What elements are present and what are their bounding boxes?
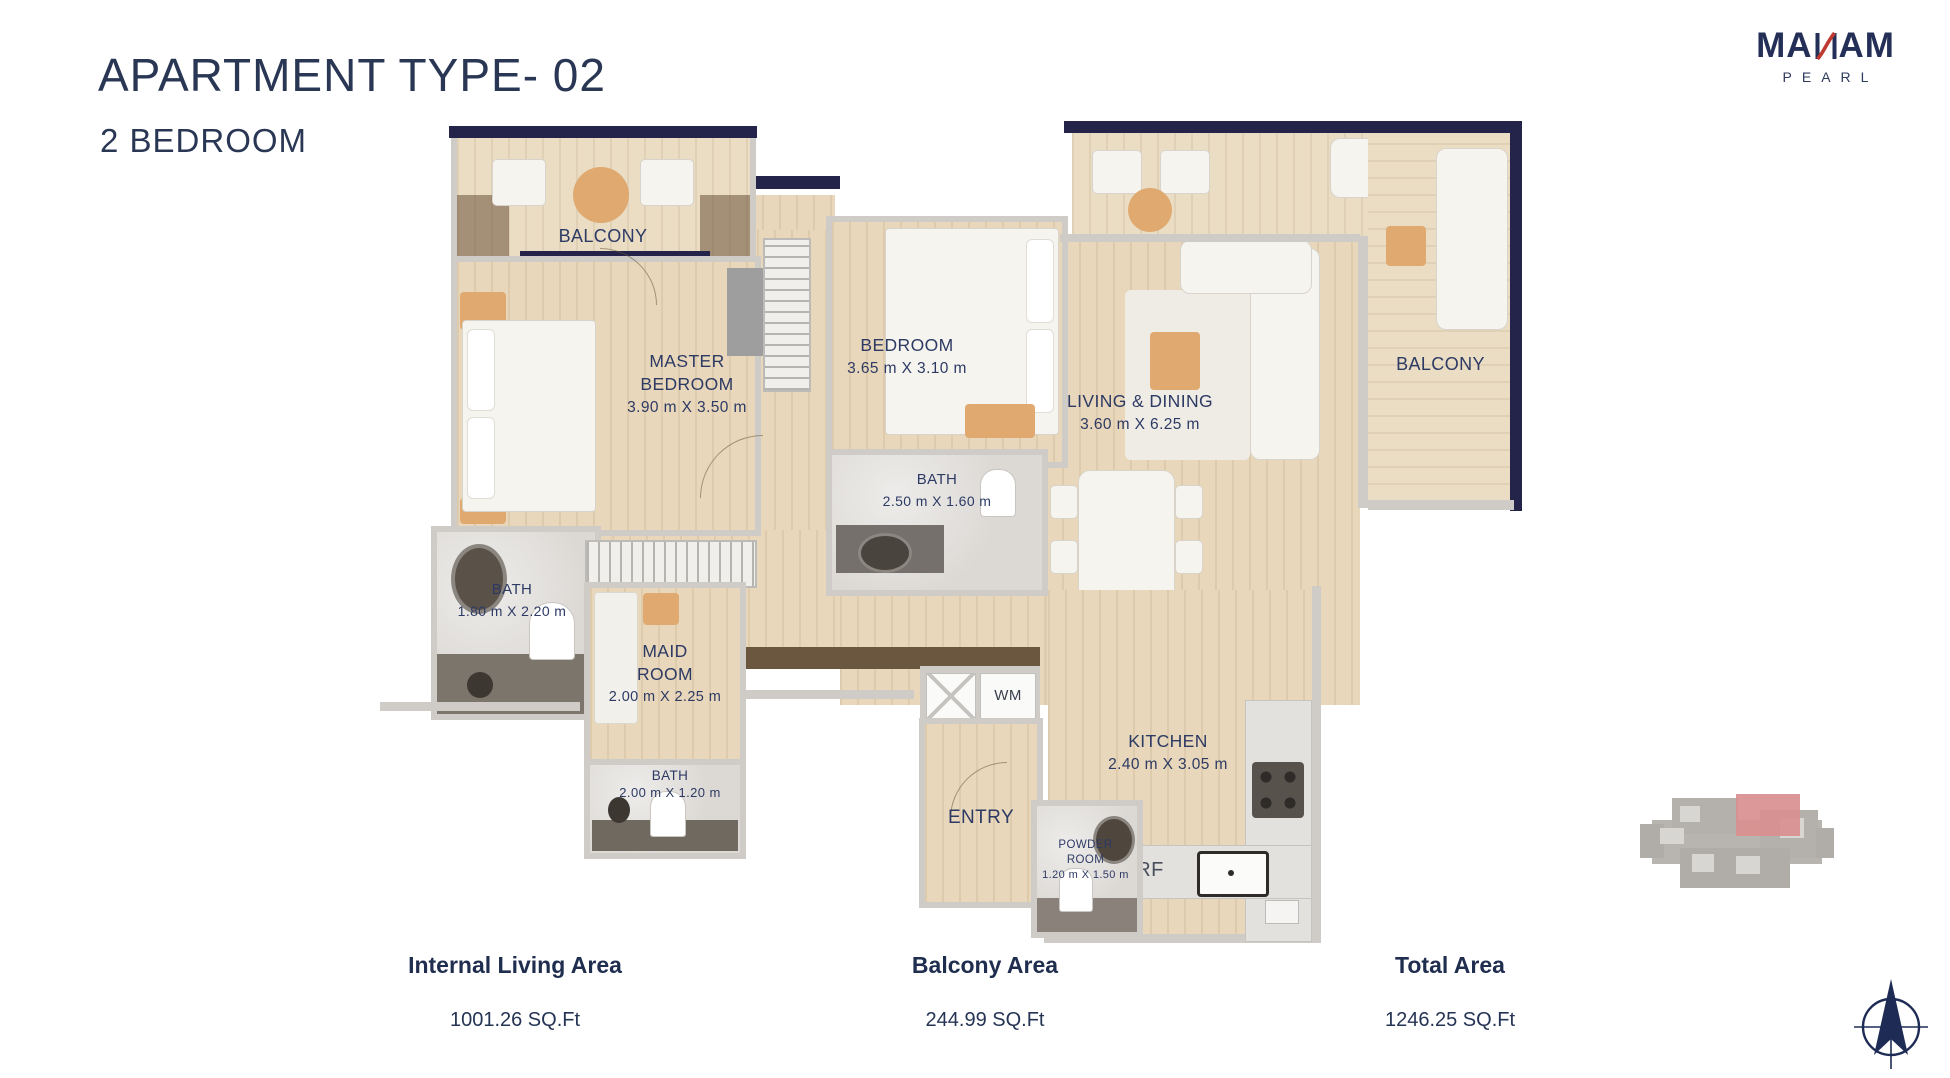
room-dims: 3.65 m X 3.10 m	[812, 359, 1002, 379]
stat-value: 1246.25 SQ.Ft	[1250, 1009, 1650, 1032]
balcony-right-side: BALCONY	[1368, 128, 1514, 502]
room-dims: 1.20 m X 1.50 m	[1033, 868, 1138, 882]
shower-drain-icon	[467, 672, 493, 698]
north-arrow-compass-icon	[1852, 975, 1930, 1071]
balcony-left-label: BALCONY	[523, 225, 683, 248]
room-name: LIVING & DINING	[1030, 390, 1250, 413]
balcony-area-stat: Balcony Area 244.99 SQ.Ft	[785, 952, 1185, 1032]
room-name: WM	[994, 686, 1021, 706]
reversed-n-icon	[1814, 32, 1838, 60]
entry-label: ENTRY	[925, 806, 1037, 831]
balcony-chair	[640, 159, 694, 206]
bath-maid-label: BATH 2.00 m X 1.20 m	[610, 767, 730, 801]
entry-hall: ENTRY	[925, 724, 1037, 902]
utility-niche: WM	[920, 666, 1040, 724]
balcony-left: BALCONY	[457, 133, 750, 258]
bedroom: BEDROOM 3.65 m X 3.10 m	[832, 222, 1062, 462]
key-plan-unit	[1680, 806, 1700, 822]
room-dims: 2.00 m X 2.25 m	[580, 688, 750, 707]
counter-box	[1265, 900, 1299, 924]
outer-wall-navy	[1064, 121, 1522, 133]
sofa-seat	[1180, 240, 1312, 294]
stat-label: Total Area	[1250, 952, 1650, 979]
maid-room-label: MAID ROOM 2.00 m X 2.25 m	[580, 640, 750, 706]
living-dining-label: LIVING & DINING 3.60 m X 6.25 m	[1030, 390, 1250, 435]
stat-value: 1001.26 SQ.Ft	[315, 1009, 715, 1032]
key-plan-stub	[1816, 828, 1834, 858]
powder-room: POWDER ROOM 1.20 m X 1.50 m	[1037, 806, 1137, 932]
stat-label: Balcony Area	[785, 952, 1185, 979]
wall	[1060, 234, 1360, 242]
room-dims: 2.00 m X 1.20 m	[610, 785, 730, 802]
pillow	[1026, 329, 1054, 413]
wall	[1358, 236, 1368, 508]
key-plan	[1640, 788, 1840, 903]
room-name: KITCHEN	[1058, 730, 1278, 753]
room-name: BALCONY	[1373, 353, 1508, 376]
room-name: BATH	[437, 580, 587, 600]
brand-wordmark: MA AM	[1738, 26, 1913, 66]
bed-bench	[965, 404, 1035, 438]
internal-area-stat: Internal Living Area 1001.26 SQ.Ft	[315, 952, 715, 1032]
brand-logo-subtitle: PEARL	[1738, 69, 1913, 85]
balcony-chair	[1160, 150, 1210, 194]
wordmark-prefix: MA	[1756, 26, 1812, 66]
maid-room: MAID ROOM 2.00 m X 2.25 m	[590, 588, 740, 763]
wardrobe-icon	[585, 540, 757, 588]
room-name: BALCONY	[523, 225, 683, 248]
fridge-icon	[1197, 851, 1269, 897]
wall	[1312, 586, 1321, 942]
bath-bedroom-label: BATH 2.50 m X 1.60 m	[857, 470, 1017, 510]
side-table	[643, 593, 679, 625]
dining-chair	[1050, 540, 1078, 574]
wardrobe-icon	[763, 238, 811, 392]
room-dims: 1.80 m X 2.20 m	[437, 602, 587, 620]
side-table	[1386, 226, 1426, 266]
outer-wall-navy	[449, 126, 757, 138]
wall	[1368, 500, 1514, 510]
room-name: MASTER BEDROOM	[622, 350, 752, 396]
powder-room-label: POWDER ROOM 1.20 m X 1.50 m	[1033, 838, 1138, 882]
page-title: APARTMENT TYPE- 02	[98, 48, 606, 102]
pillow	[1026, 239, 1054, 323]
room-name: BATH	[610, 767, 730, 785]
pillow	[467, 329, 495, 411]
outdoor-sofa	[1436, 148, 1508, 330]
bath-master-label: BATH 1.80 m X 2.20 m	[437, 580, 587, 620]
balcony-round-table	[573, 167, 629, 223]
room-name: BATH	[857, 470, 1017, 490]
exterior-wall	[380, 702, 580, 711]
shaft-box	[926, 673, 976, 719]
room-name: MAID ROOM	[630, 640, 700, 686]
kitchen-label: KITCHEN 2.40 m X 3.05 m	[1058, 730, 1278, 775]
dining-chair	[1175, 485, 1203, 519]
bedroom-label: BEDROOM 3.65 m X 3.10 m	[812, 334, 1002, 379]
bath-maid: BATH 2.00 m X 1.20 m	[590, 765, 740, 853]
wall-shadow	[700, 195, 750, 258]
bath-bedroom: BATH 2.50 m X 1.60 m	[832, 455, 1042, 590]
room-dims: 2.50 m X 1.60 m	[857, 492, 1017, 510]
bed	[462, 320, 596, 512]
total-area-stat: Total Area 1246.25 SQ.Ft	[1250, 952, 1650, 1032]
balcony-right-label: BALCONY	[1373, 353, 1508, 376]
stat-value: 244.99 SQ.Ft	[785, 1009, 1185, 1032]
outer-wall-navy	[1510, 121, 1522, 511]
stat-label: Internal Living Area	[315, 952, 715, 979]
brochure-page: APARTMENT TYPE- 02 2 BEDROOM MA AM PEARL…	[0, 0, 1950, 1078]
wall-column	[727, 268, 763, 356]
balcony-round-table	[1128, 188, 1172, 232]
bath-master: BATH 1.80 m X 2.20 m	[437, 532, 595, 714]
master-bedroom-label: MASTER BEDROOM 3.90 m X 3.50 m	[597, 350, 777, 418]
room-name: ENTRY	[925, 806, 1037, 831]
exterior-wall	[742, 690, 914, 699]
room-dims: 3.60 m X 6.25 m	[1030, 415, 1250, 435]
key-plan-highlighted-unit	[1736, 794, 1800, 836]
wordmark-suffix: AM	[1839, 26, 1895, 66]
fridge-handle	[1228, 870, 1234, 876]
dining-chair	[1050, 485, 1078, 519]
washing-machine-box: WM	[980, 673, 1036, 719]
room-dims: 2.40 m X 3.05 m	[1058, 755, 1278, 775]
balcony-chair	[492, 159, 546, 206]
room-name: BEDROOM	[812, 334, 1002, 357]
key-plan-unit	[1660, 828, 1684, 844]
balcony-chair	[1092, 150, 1142, 194]
sink-icon	[858, 533, 912, 573]
dining-chair	[1175, 540, 1203, 574]
room-dims: 3.90 m X 3.50 m	[597, 398, 777, 418]
coffee-table	[1150, 332, 1200, 390]
room-name: POWDER ROOM	[1056, 838, 1116, 868]
key-plan-unit	[1692, 854, 1714, 872]
brand-logo: MA AM PEARL	[1738, 26, 1913, 85]
pillow	[467, 417, 495, 499]
page-subtitle: 2 BEDROOM	[100, 122, 307, 160]
key-plan-unit	[1736, 856, 1760, 874]
